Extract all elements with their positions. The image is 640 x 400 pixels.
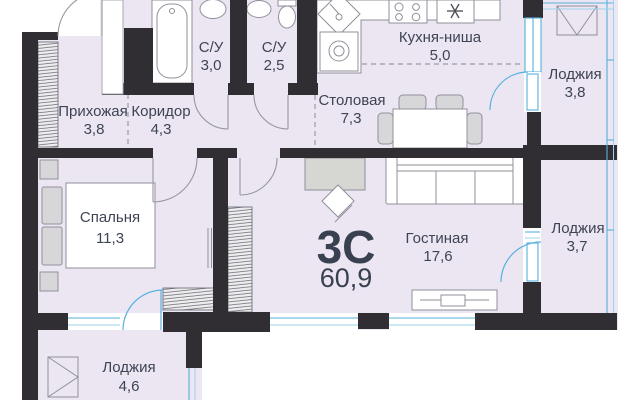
room-label-kitchen-niche: Кухня-ниша bbox=[399, 29, 482, 46]
room-area-loggia-right: 3,7 bbox=[567, 238, 588, 255]
living-wardrobe-icon bbox=[228, 207, 252, 312]
hall-wardrobe-icon bbox=[38, 42, 58, 147]
room-area-hallway: 3,8 bbox=[84, 121, 105, 138]
living-loggia-window bbox=[523, 228, 541, 242]
tv-stand-icon bbox=[412, 290, 497, 310]
room-area-living: 17,6 bbox=[423, 248, 452, 265]
room-area-bathroom2: 2,5 bbox=[264, 57, 285, 74]
room-area-bathroom1: 3,0 bbox=[201, 57, 222, 74]
room-label-loggia-top: Лоджия bbox=[548, 66, 601, 83]
room-area-dining: 7,3 bbox=[341, 110, 362, 127]
cooktop-icon bbox=[389, 0, 427, 23]
room-label-living: Гостиная bbox=[406, 230, 469, 247]
unit-total-area: 60,9 bbox=[320, 263, 373, 293]
desk-icon bbox=[305, 158, 365, 190]
utility-shaft bbox=[102, 0, 123, 94]
toilet-icon bbox=[278, 0, 296, 28]
living-window-right bbox=[389, 313, 475, 330]
washing-machine-icon bbox=[320, 32, 358, 71]
room-area-corridor: 4,3 bbox=[151, 121, 172, 138]
living-window-left bbox=[270, 313, 358, 330]
room-area-kitchen-niche: 5,0 bbox=[430, 47, 451, 64]
room-label-hallway: Прихожая bbox=[58, 103, 128, 120]
room-label-loggia-bottom: Лоджия bbox=[102, 359, 155, 376]
room-area-loggia-bottom: 4,6 bbox=[119, 378, 140, 395]
room-label-bathroom1: С/У bbox=[199, 39, 224, 56]
dining-loggia-window bbox=[525, 18, 541, 72]
room-area-loggia-top: 3,8 bbox=[565, 84, 586, 101]
room-label-loggia-right: Лоджия bbox=[551, 220, 604, 237]
floor-plan: Прихожая 3,8 Коридор 4,3 С/У 3,0 С/У 2,5… bbox=[0, 0, 640, 400]
room-label-dining: Столовая bbox=[318, 92, 385, 109]
entry-door-icon bbox=[58, 0, 102, 36]
room-area-bedroom: 11,3 bbox=[96, 230, 124, 247]
room-label-bathroom2: С/У bbox=[262, 39, 287, 56]
refrigerator-icon bbox=[437, 0, 474, 23]
sofa-icon bbox=[386, 157, 525, 204]
bedroom-window bbox=[68, 313, 120, 330]
room-label-bedroom: Спальня bbox=[80, 209, 140, 226]
room-label-corridor: Коридор bbox=[131, 103, 190, 120]
bathtub-icon bbox=[152, 0, 192, 83]
